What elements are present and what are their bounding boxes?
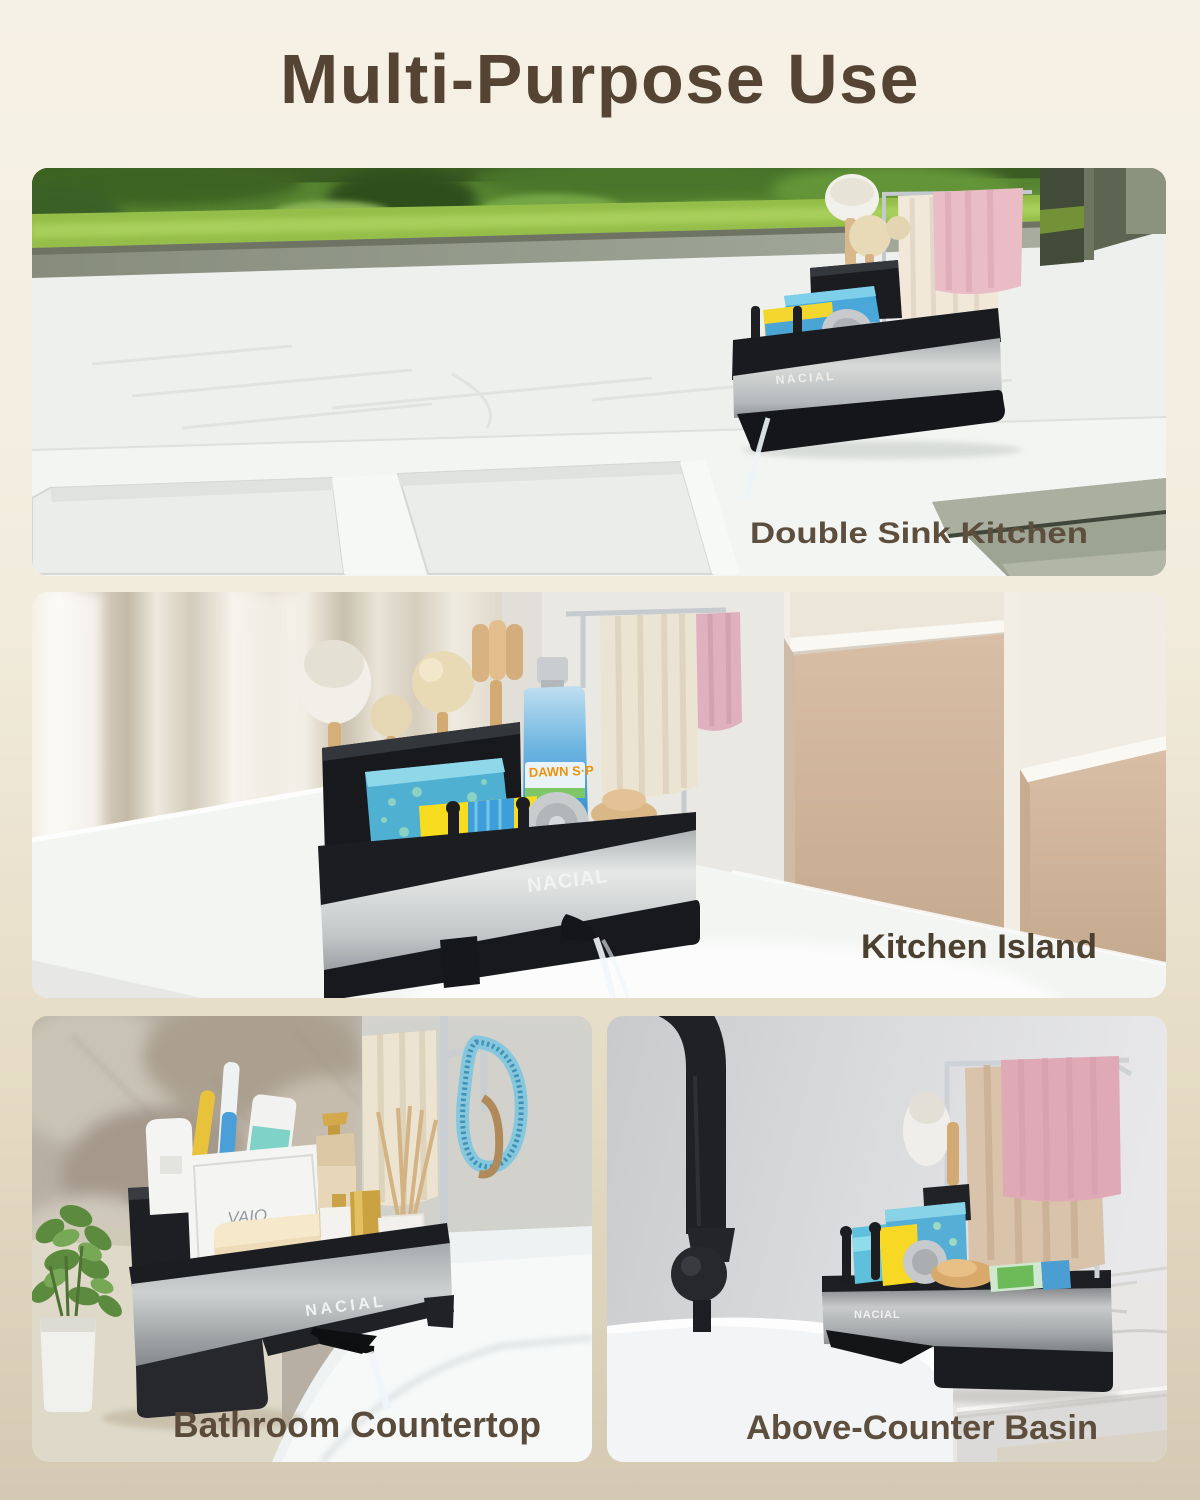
svg-text:NACIAL: NACIAL: [854, 1309, 900, 1321]
svg-text:Double Sink Kitchen: Double Sink Kitchen: [750, 517, 1088, 550]
svg-text:DAWN S·P: DAWN S·P: [529, 763, 595, 780]
svg-text:Above-Counter Basin: Above-Counter Basin: [746, 1409, 1098, 1447]
svg-text:Kitchen Island: Kitchen Island: [861, 928, 1097, 966]
svg-text:Bathroom Countertop: Bathroom Countertop: [173, 1404, 541, 1445]
